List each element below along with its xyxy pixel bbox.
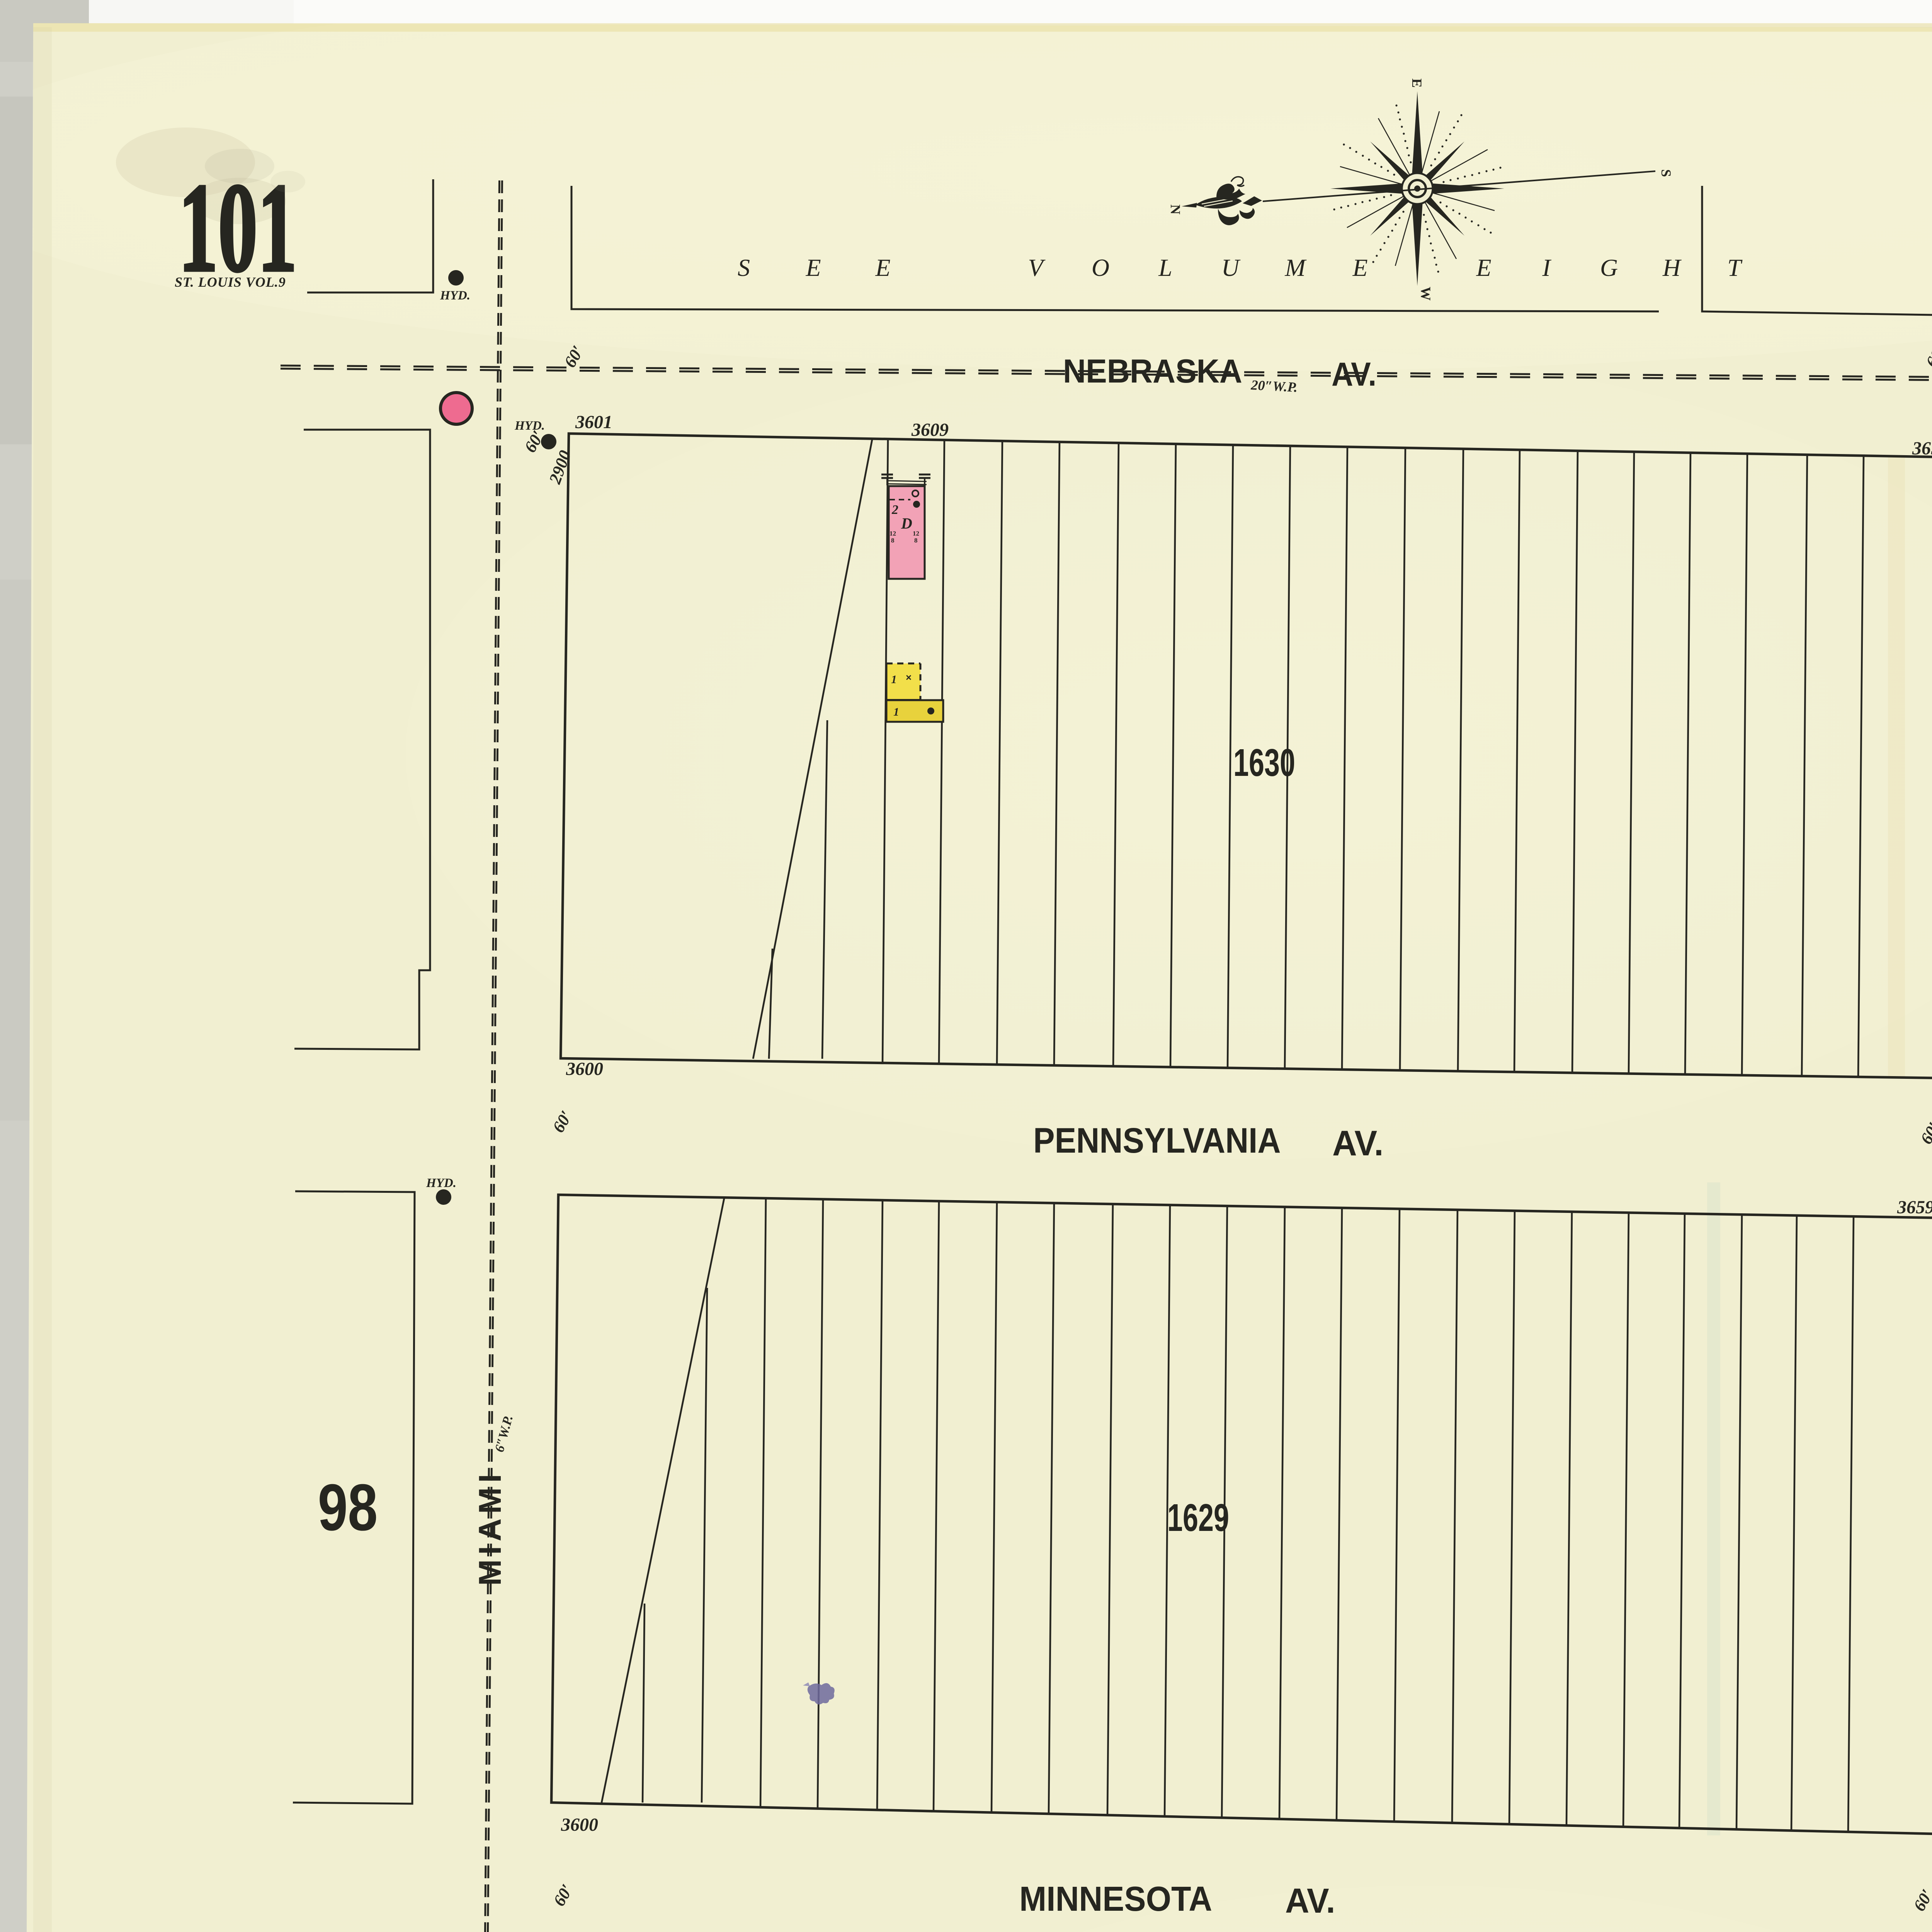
svg-text:I: I	[1542, 254, 1551, 281]
svg-text:D: D	[901, 515, 912, 532]
svg-text:3659: 3659	[1897, 1197, 1932, 1218]
svg-text:2: 2	[891, 503, 898, 517]
svg-text:×: ×	[906, 672, 912, 683]
svg-text:E: E	[805, 254, 821, 281]
svg-text:O: O	[1092, 254, 1109, 281]
svg-text:3609: 3609	[911, 420, 949, 440]
svg-text:E: E	[1409, 78, 1425, 88]
svg-text:E: E	[1352, 254, 1367, 281]
svg-text:E: E	[875, 254, 890, 281]
svg-text:MIAMI: MIAMI	[473, 1469, 508, 1586]
svg-text:HYD.: HYD.	[514, 419, 545, 433]
svg-text:AV.: AV.	[1332, 1123, 1384, 1163]
svg-text:S: S	[1658, 169, 1674, 177]
svg-text:98: 98	[318, 1471, 378, 1545]
svg-text:HYD.: HYD.	[426, 1176, 456, 1190]
svg-text:8: 8	[914, 537, 918, 544]
svg-text:PENNSYLVANIA: PENNSYLVANIA	[1033, 1121, 1281, 1160]
svg-text:12: 12	[889, 530, 896, 537]
svg-text:AV.: AV.	[1285, 1881, 1335, 1920]
svg-text:3600: 3600	[561, 1815, 598, 1835]
svg-text:1: 1	[893, 706, 899, 718]
svg-text:G: G	[1600, 254, 1618, 281]
svg-text:12: 12	[913, 530, 919, 537]
svg-text:U: U	[1221, 254, 1241, 281]
svg-text:N: N	[1168, 204, 1183, 214]
svg-text:MINNESOTA: MINNESOTA	[1019, 1879, 1212, 1918]
svg-text:E: E	[1476, 254, 1491, 281]
svg-text:3659: 3659	[1912, 438, 1932, 459]
svg-text:S: S	[738, 254, 750, 281]
svg-text:W: W	[1418, 287, 1434, 301]
svg-text:AV.: AV.	[1332, 356, 1376, 393]
svg-text:M: M	[1284, 254, 1307, 281]
svg-text:3601: 3601	[575, 412, 612, 432]
svg-text:L: L	[1158, 254, 1172, 281]
svg-text:8: 8	[891, 537, 895, 544]
svg-text:ST. LOUIS VOL.9: ST. LOUIS VOL.9	[175, 274, 286, 290]
svg-text:3600: 3600	[566, 1059, 603, 1079]
svg-text:1629: 1629	[1167, 1496, 1229, 1539]
svg-text:H: H	[1662, 254, 1682, 281]
svg-text:1630: 1630	[1233, 741, 1295, 784]
svg-text:HYD.: HYD.	[440, 289, 470, 303]
svg-text:NEBRASKA: NEBRASKA	[1063, 352, 1242, 389]
svg-text:T: T	[1727, 254, 1743, 281]
svg-text:20″W.P.: 20″W.P.	[1250, 377, 1298, 395]
svg-text:1: 1	[891, 673, 897, 686]
